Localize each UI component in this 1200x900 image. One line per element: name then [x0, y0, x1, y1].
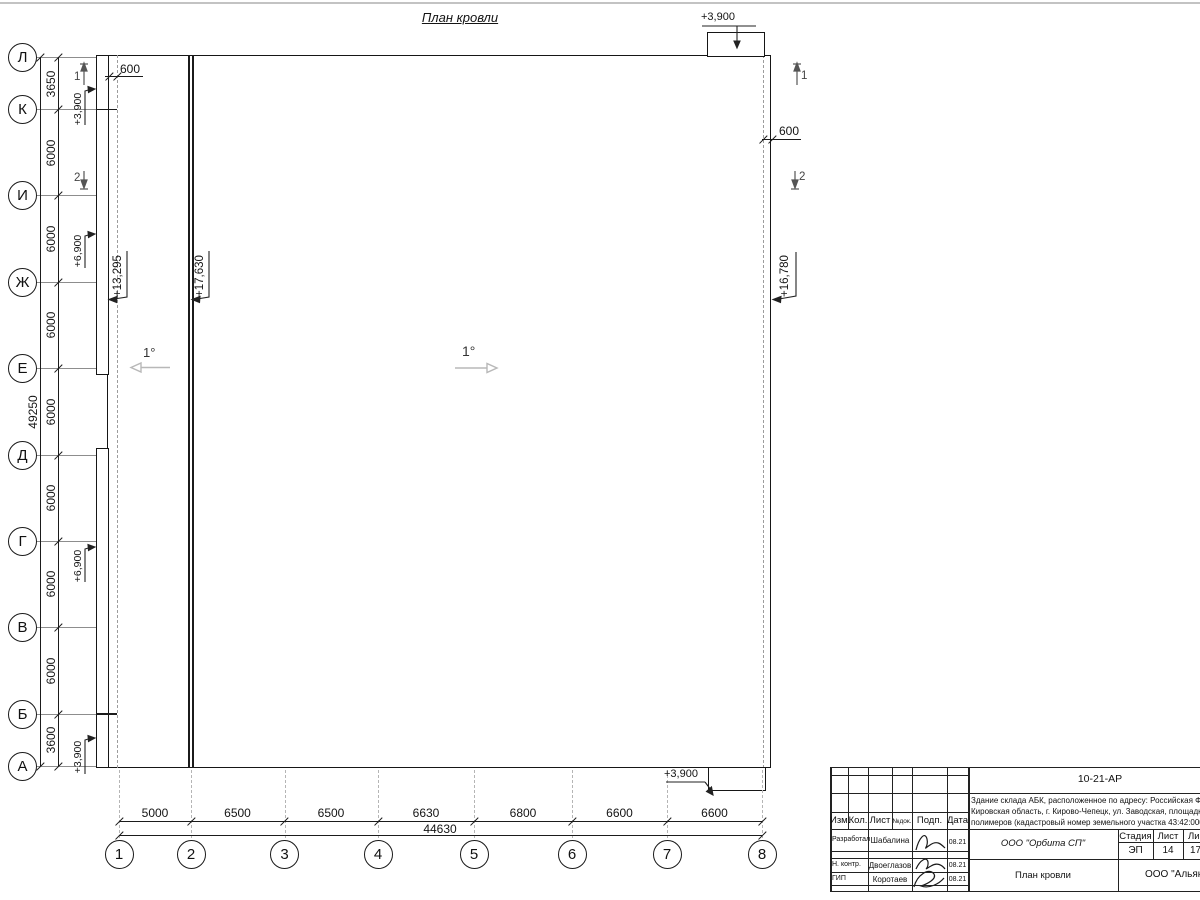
- section-mark-1-right: [793, 63, 801, 85]
- stamp-line: [912, 767, 913, 891]
- elevation-leader-strip-top: [85, 87, 95, 126]
- annotation-arrows: [0, 0, 1200, 900]
- stamp-border: [830, 891, 1200, 893]
- stamp-col-header: Изм.: [830, 815, 848, 826]
- stamp-col-header: Кол.: [848, 815, 868, 826]
- signature: [914, 836, 945, 887]
- elevation-leader-strip-upper: [85, 232, 95, 269]
- stamp-client-org: ООО "Альянс: [1145, 869, 1200, 880]
- stamp-role: Н. контр.: [832, 861, 861, 868]
- elevation-leader-strip-lower: [85, 545, 95, 583]
- roof-plan-sheet: План кровли: [0, 0, 1200, 900]
- stamp-border: [830, 767, 832, 891]
- stamp-line: [830, 793, 1200, 794]
- section-mark-2-left: [80, 171, 88, 189]
- stamp-stage-header: Стадия: [1118, 831, 1153, 842]
- section-mark-2-right: [791, 171, 799, 189]
- stamp-line: [1183, 829, 1184, 859]
- stamp-sheets-total: 17: [1190, 845, 1200, 856]
- section-mark-1-left: [80, 63, 88, 85]
- stamp-project-line: Кировская область, г. Кирово-Чепецк, ул.…: [971, 807, 1200, 816]
- stamp-design-org: ООО "Орбита СП": [968, 838, 1118, 849]
- stamp-border: [830, 767, 1200, 769]
- slope-arrow-left: [131, 363, 170, 372]
- slope-arrow-main: [455, 364, 497, 373]
- elevation-leader-canopy-bottom: [666, 782, 713, 795]
- stamp-line: [868, 767, 869, 891]
- stamp-doc-code: 10-21-АР: [968, 773, 1200, 785]
- stamp-name: Шабалина: [868, 836, 912, 845]
- stamp-col-header: Дата: [947, 815, 968, 826]
- stamp-stage-value: ЭП: [1118, 845, 1153, 856]
- elevation-leader-17630: [192, 251, 209, 303]
- stamp-sheet-number: 14: [1153, 845, 1183, 856]
- stamp-project-line: Здание склада АБК, расположенное по адре…: [971, 796, 1200, 805]
- stamp-line: [1118, 842, 1200, 843]
- stamp-col-header: Лист: [868, 815, 892, 826]
- stamp-col-header: Подп.: [912, 815, 947, 826]
- elevation-leader-strip-bottom: [85, 736, 95, 775]
- stamp-date: 08.21: [947, 876, 968, 883]
- stamp-line: [830, 829, 1200, 830]
- stamp-col-header: №док.: [892, 818, 912, 825]
- elevation-leader-canopy-top: [702, 26, 756, 48]
- stamp-line: [968, 859, 1200, 860]
- stamp-date: 08.21: [947, 862, 968, 869]
- stamp-role: Разработал: [832, 836, 870, 843]
- stamp-stage-header: Лист: [1153, 831, 1183, 842]
- stamp-line: [947, 767, 948, 891]
- elevation-leader-16780: [773, 252, 796, 303]
- stamp-sheet-name: План кровли: [968, 870, 1118, 881]
- stamp-date: 08.21: [947, 839, 968, 846]
- stamp-name: Двоеглазов: [868, 861, 912, 870]
- stamp-project-line: полимеров (кадастровый номер земельного …: [971, 818, 1200, 827]
- elevation-leader-13295: [109, 251, 127, 303]
- stamp-role: ГИП: [832, 875, 846, 882]
- stamp-stage-header: Ли: [1188, 831, 1200, 842]
- stamp-name: Коротаев: [868, 875, 912, 884]
